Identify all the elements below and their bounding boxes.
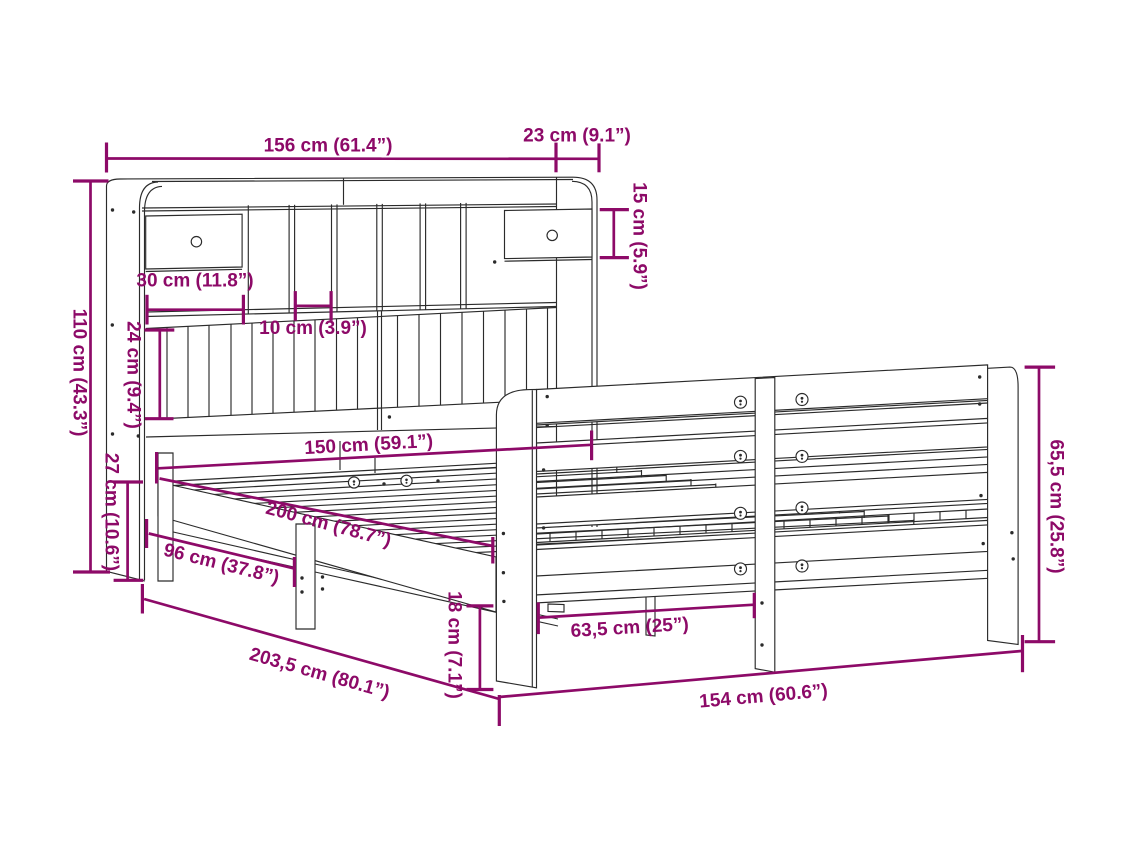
svg-text:15 cm (5.9”): 15 cm (5.9”) bbox=[629, 182, 650, 290]
svg-text:110 cm (43.3”): 110 cm (43.3”) bbox=[69, 309, 90, 437]
svg-text:23 cm (9.1”): 23 cm (9.1”) bbox=[523, 126, 631, 147]
svg-text:65,5 cm (25.8”): 65,5 cm (25.8”) bbox=[1046, 439, 1067, 573]
svg-text:30 cm (11.8”): 30 cm (11.8”) bbox=[136, 271, 253, 292]
svg-text:18 cm (7.1”): 18 cm (7.1”) bbox=[444, 591, 465, 699]
svg-text:24 cm (9.4”): 24 cm (9.4”) bbox=[123, 321, 144, 429]
svg-text:156 cm (61.4”): 156 cm (61.4”) bbox=[264, 135, 393, 156]
svg-text:27 cm (10.6”): 27 cm (10.6”) bbox=[101, 453, 122, 571]
svg-text:10 cm (3.9”): 10 cm (3.9”) bbox=[259, 318, 367, 339]
